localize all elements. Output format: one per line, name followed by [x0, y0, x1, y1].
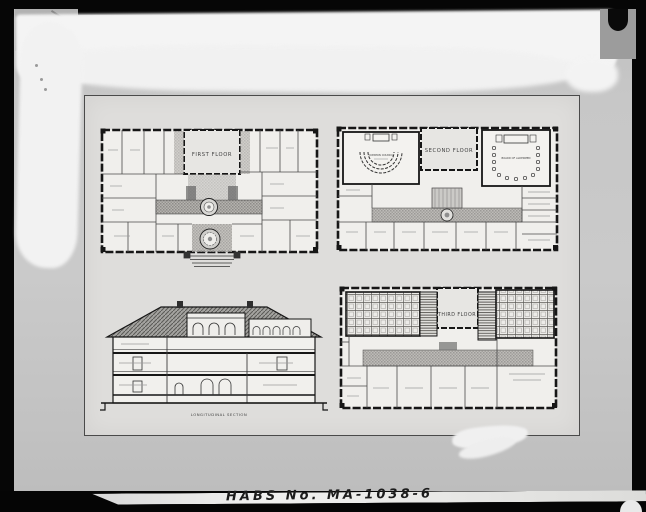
- aldermen-chamber-label: BOARD OF ALDERMEN: [502, 156, 531, 160]
- stair-left: [420, 292, 437, 336]
- second-floor-plan: COMMON COUNCIL BOARD OF ALDERMEN: [336, 126, 559, 252]
- coffered-hall-left: [346, 292, 420, 336]
- dust-speck: [35, 64, 38, 67]
- dust-speck: [44, 88, 47, 91]
- archival-photo-frame: FIRST FLOOR COMMON COUNCIL: [0, 0, 646, 512]
- council-chamber-label: COMMON COUNCIL: [369, 153, 394, 157]
- ground-line: [100, 403, 328, 410]
- stair-hall: [432, 188, 462, 208]
- central-monitor: [187, 313, 245, 337]
- arcade-right: [249, 319, 311, 337]
- entrance-steps: [184, 252, 240, 267]
- council-chamber: COMMON COUNCIL: [343, 132, 419, 184]
- dust-speck: [40, 78, 43, 81]
- third-floor-plan: THIRD FLOOR: [339, 286, 558, 410]
- paint-smear-left: [15, 21, 84, 269]
- second-floor-title: SECOND FLOOR: [425, 148, 473, 154]
- longitudinal-section: LONGITUDINAL SECTION: [97, 299, 331, 421]
- paint-smear-top-right: [566, 58, 618, 92]
- section-title: LONGITUDINAL SECTION: [191, 412, 248, 417]
- coffered-hall-right: [496, 290, 554, 338]
- aldermen-chamber: BOARD OF ALDERMEN: [482, 130, 550, 186]
- film-clip-notch: [608, 9, 628, 31]
- third-floor-title: THIRD FLOOR: [437, 312, 476, 318]
- main-corridor: [363, 350, 533, 366]
- first-floor-plan: FIRST FLOOR: [100, 128, 319, 272]
- stair-right: [478, 292, 496, 340]
- light-court: [437, 288, 478, 328]
- habs-number-label: HABS No. MA-1038-6: [226, 487, 426, 508]
- first-floor-title: FIRST FLOOR: [192, 152, 232, 158]
